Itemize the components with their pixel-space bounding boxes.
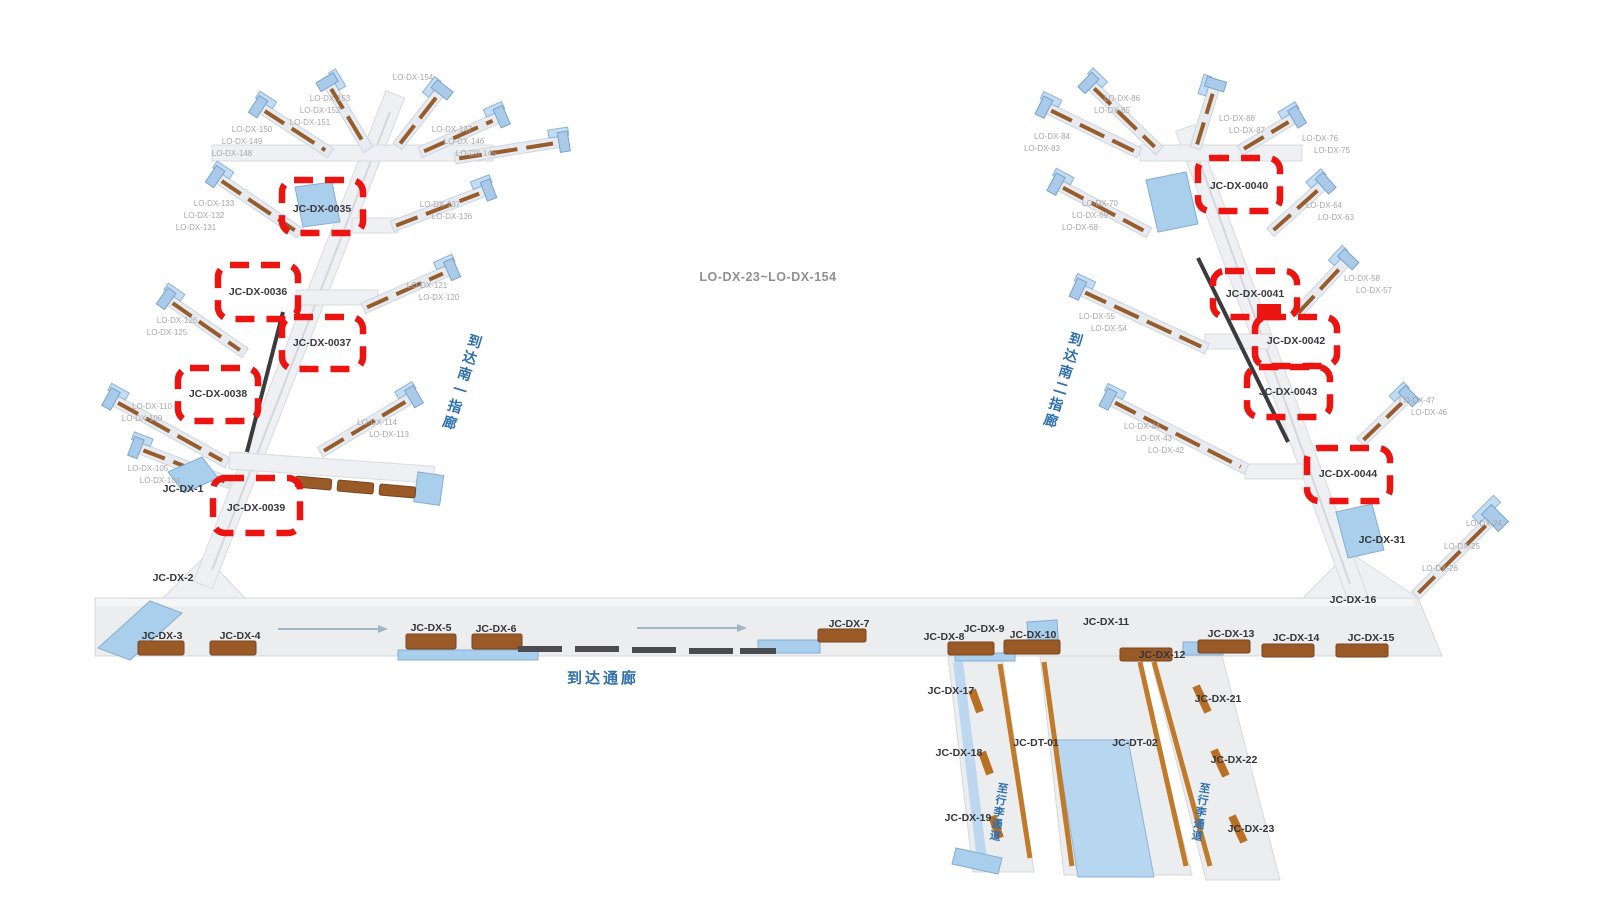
small-gate-label: LO-DX-154 xyxy=(393,73,434,82)
gate-label: JC-DX-31 xyxy=(1359,534,1406,546)
platform xyxy=(212,145,493,161)
small-gate-label: LO-DX-43 xyxy=(1136,434,1173,443)
gate-label: JC-DX-8 xyxy=(924,631,965,643)
small-gate-label: LO-DX-85 xyxy=(1094,106,1131,115)
gate-label: JC-DX-3 xyxy=(142,630,183,642)
small-gate-label: LO-DX-26 xyxy=(1422,564,1459,573)
corridor-label: 到达通廊 xyxy=(567,669,639,687)
corridor-top-highlight xyxy=(96,599,1414,606)
small-gate-label: LO-DX-25 xyxy=(1444,542,1481,551)
gate-label: JC-DX-12 xyxy=(1139,649,1186,661)
small-gate-label: LO-DX-83 xyxy=(1024,144,1061,153)
gate-label: JC-DX-22 xyxy=(1211,754,1258,766)
gate-label: JC-DX-4 xyxy=(220,630,261,642)
highlighted-label: JC-DX-0038 xyxy=(189,388,248,400)
gate-label: JC-DX-23 xyxy=(1228,823,1275,835)
small-gate-label: LO-DX-152 xyxy=(300,106,341,115)
corridor-blue-strip xyxy=(398,650,538,660)
corridor-dash xyxy=(632,647,676,653)
gate-label: JC-DX-16 xyxy=(1330,594,1377,606)
small-gate-label: LO-DX-55 xyxy=(1079,312,1116,321)
highlighted-label: JC-DX-0042 xyxy=(1267,335,1326,347)
small-gate-label: LO-DX-126 xyxy=(157,316,198,325)
small-gate-label: LO-DX-120 xyxy=(419,293,460,302)
small-gate-label: LO-DX-84 xyxy=(1034,132,1071,141)
corridor-dash xyxy=(740,648,776,654)
range-label: LO-DX-23~LO-DX-154 xyxy=(699,270,836,284)
small-gate-label: LO-DX-57 xyxy=(1356,286,1393,295)
highlighted-label: JC-DX-0035 xyxy=(293,203,352,215)
gate-label: JC-DT-02 xyxy=(1112,737,1158,749)
small-gate-label: LO-DX-132 xyxy=(184,211,225,220)
small-gate-label: LO-DX-146 xyxy=(444,137,485,146)
small-gate-label: LO-DX-110 xyxy=(132,402,172,411)
small-gate-label: LO-DX-46 xyxy=(1411,408,1448,417)
small-gate-label: LO-DX-125 xyxy=(147,328,188,337)
gate-label: JC-DX-6 xyxy=(476,623,517,635)
small-gate-label: LO-DX-76 xyxy=(1302,134,1339,143)
gate-bar xyxy=(1004,640,1060,654)
highlighted-label: JC-DX-0039 xyxy=(227,502,286,514)
small-gate-label: LO-DX-47 xyxy=(1399,396,1436,405)
corridor-dash xyxy=(689,648,733,654)
highlighted-label: JC-DX-0036 xyxy=(229,286,288,298)
small-gate-label: LO-DX-88 xyxy=(1219,114,1256,123)
gate-label: JC-DX-13 xyxy=(1208,628,1255,640)
small-gate-label: LO-DX-145 xyxy=(456,149,497,158)
platform xyxy=(1245,464,1303,479)
jet-bridge xyxy=(1097,383,1252,478)
small-gate-label: LO-DX-121 xyxy=(407,281,448,290)
gate-bar xyxy=(1336,644,1388,657)
gate-bar xyxy=(1262,644,1314,657)
gate-label: JC-DX-7 xyxy=(829,618,870,630)
gate-label: JC-DX-15 xyxy=(1348,632,1395,644)
gate-bar xyxy=(472,634,522,649)
gate-bar xyxy=(337,480,374,494)
small-gate-label: LO-DX-151 xyxy=(290,118,331,127)
gate-bar xyxy=(406,634,456,649)
highlighted-label: JC-DX-0041 xyxy=(1226,288,1285,300)
gate-label: JC-DX-14 xyxy=(1273,632,1320,644)
corridor-dash xyxy=(518,646,562,652)
highlighted-label: JC-DX-0037 xyxy=(293,337,352,349)
highlighted-label: JC-DX-0040 xyxy=(1210,180,1269,192)
gate-bar xyxy=(138,641,184,655)
gate-label: JC-DX-21 xyxy=(1195,693,1242,705)
gate-label: JC-DX-5 xyxy=(411,622,452,634)
small-gate-label: LO-DX-68 xyxy=(1062,223,1099,232)
gate-label: JC-DX-19 xyxy=(945,812,992,824)
highlight-blob xyxy=(1257,304,1281,319)
gate-bar xyxy=(210,641,256,655)
small-gate-label: LO-DX-87 xyxy=(1229,126,1266,135)
small-gate-label: LO-DX-133 xyxy=(194,199,235,208)
highlighted-label: JC-DX-0043 xyxy=(1259,386,1318,398)
small-gate-label: LO-DX-113 xyxy=(369,430,409,439)
gate-label: JC-DT-01 xyxy=(1013,737,1059,749)
small-gate-label: LO-DX-150 xyxy=(232,125,273,134)
gate-label: JC-DX-2 xyxy=(153,572,194,584)
small-gate-label: LO-DX-64 xyxy=(1306,201,1343,210)
small-gate-label: LO-DX-44 xyxy=(1124,422,1161,431)
highlighted-label: JC-DX-0044 xyxy=(1319,468,1378,480)
small-gate-label: LO-DX-24 xyxy=(1466,519,1503,528)
gate-label: JC-DX-9 xyxy=(964,623,1005,635)
dock xyxy=(414,472,444,505)
small-gate-label: LO-DX-42 xyxy=(1148,446,1185,455)
small-gate-label: LO-DX-114 xyxy=(357,418,397,427)
corridor-dash xyxy=(575,646,619,652)
small-gate-label: LO-DX-136 xyxy=(432,212,473,221)
small-gate-label: LO-DX-131 xyxy=(176,223,217,232)
gate-bar xyxy=(948,642,994,655)
small-gate-label: LO-DX-86 xyxy=(1104,94,1141,103)
gate-bar xyxy=(379,484,416,498)
small-gate-label: LO-DX-58 xyxy=(1344,274,1381,283)
gate-label: JC-DX-18 xyxy=(936,747,983,759)
small-gate-label: LO-DX-69 xyxy=(1072,211,1109,220)
small-gate-label: LO-DX-75 xyxy=(1314,146,1351,155)
small-gate-label: LO-DX-70 xyxy=(1082,199,1119,208)
small-gate-label: LO-DX-153 xyxy=(310,94,351,103)
gate-label: JC-DX-10 xyxy=(1010,629,1057,641)
small-gate-label: LO-DX-109 xyxy=(122,414,163,423)
jet-bridge xyxy=(1351,382,1420,450)
small-gate-label: LO-DX-147 xyxy=(432,125,473,134)
small-gate-label: LO-DX-105 xyxy=(128,464,169,473)
gate-label: JC-DX-17 xyxy=(928,685,975,697)
building xyxy=(1146,172,1198,232)
gate-bar xyxy=(818,629,866,642)
gate-bar xyxy=(1198,640,1250,653)
small-gate-label: LO-DX-63 xyxy=(1318,213,1355,222)
small-gate-label: LO-DX-104 xyxy=(140,476,181,485)
terminal-map: JC-DX-0035 JC-DX-0036 JC-DX-0037 JC-DX-0… xyxy=(0,0,1600,900)
gate-label: JC-DX-11 xyxy=(1083,616,1129,628)
small-gate-label: LO-DX-149 xyxy=(222,137,263,146)
small-gate-label: LO-DX-54 xyxy=(1091,324,1128,333)
small-gate-label: LO-DX-148 xyxy=(212,149,253,158)
terminal-map-canvas: JC-DX-0035 JC-DX-0036 JC-DX-0037 JC-DX-0… xyxy=(0,0,1600,900)
small-gate-label: LO-DX-137 xyxy=(420,200,461,209)
